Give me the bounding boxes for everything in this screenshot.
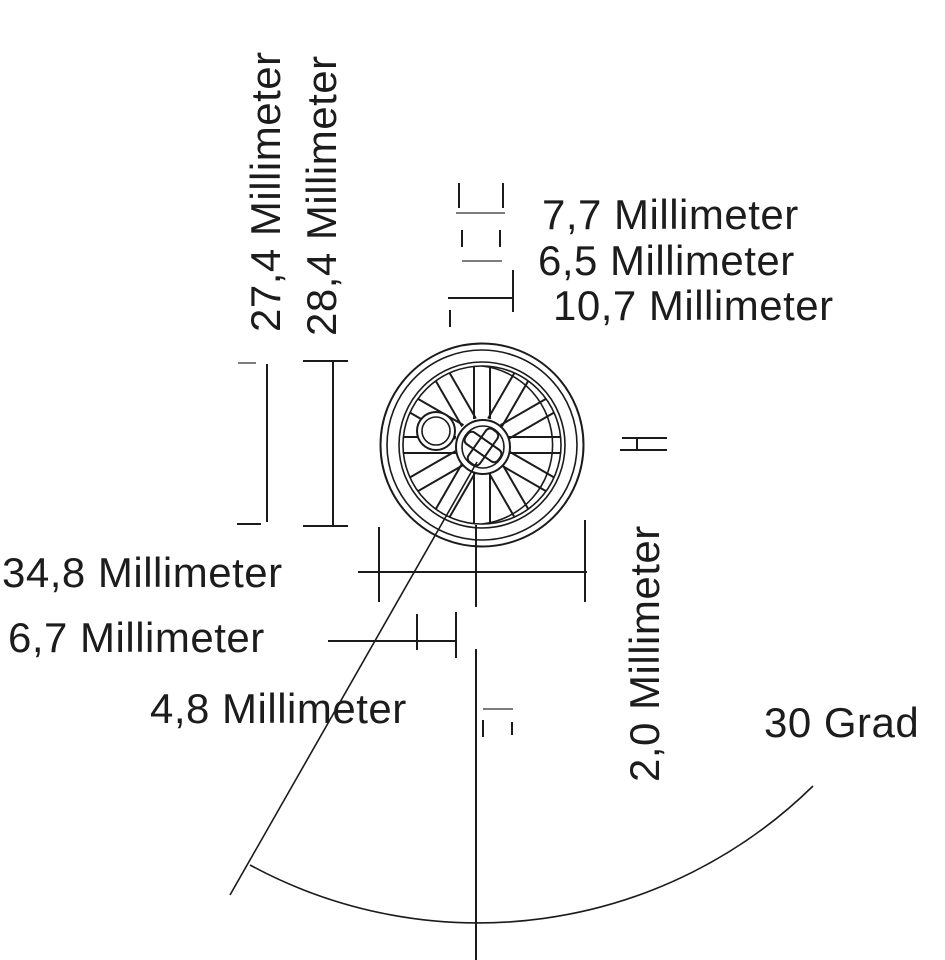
dimension-label-4-8: 4,8 Millimeter: [150, 686, 407, 732]
wheel-drawing: [0, 0, 945, 960]
dimension-label-2-0: 2,0 Millimeter: [622, 525, 668, 782]
dimension-mark-7-7: [456, 183, 505, 213]
counterweight-inner-circle: [422, 417, 450, 445]
dimension-line-28-4: [303, 361, 348, 526]
dimension-label-6-7: 6,7 Millimeter: [8, 615, 265, 661]
dimension-line-34-8: [358, 520, 587, 602]
dimension-label-10-7: 10,7 Millimeter: [553, 283, 834, 329]
dimension-label-34-8: 34,8 Millimeter: [2, 550, 283, 596]
dimension-label-7-7: 7,7 Millimeter: [542, 192, 799, 238]
dimension-mark-6-5: [462, 230, 502, 261]
wheel: [381, 344, 584, 547]
dimension-mark-10-7: [448, 270, 513, 327]
dimension-label-27-4: 27,4 Millimeter: [243, 51, 289, 332]
dimension-label-28-4: 28,4 Millimeter: [299, 55, 345, 336]
angle-dimension-arc: [250, 786, 813, 923]
leader-angle-ray: [230, 462, 477, 895]
dimension-label-6-5: 6,5 Millimeter: [538, 238, 795, 284]
dimension-mark-4-8: [483, 709, 513, 737]
technical-drawing-canvas: 27,4 Millimeter 28,4 Millimeter 7,7 Mill…: [0, 0, 945, 960]
dimension-line-6-7: [328, 612, 456, 658]
angle-label-30-grad: 30 Grad: [764, 700, 919, 746]
dimension-line-27-4: [237, 363, 267, 524]
dimension-mark-2-0: [620, 438, 667, 450]
